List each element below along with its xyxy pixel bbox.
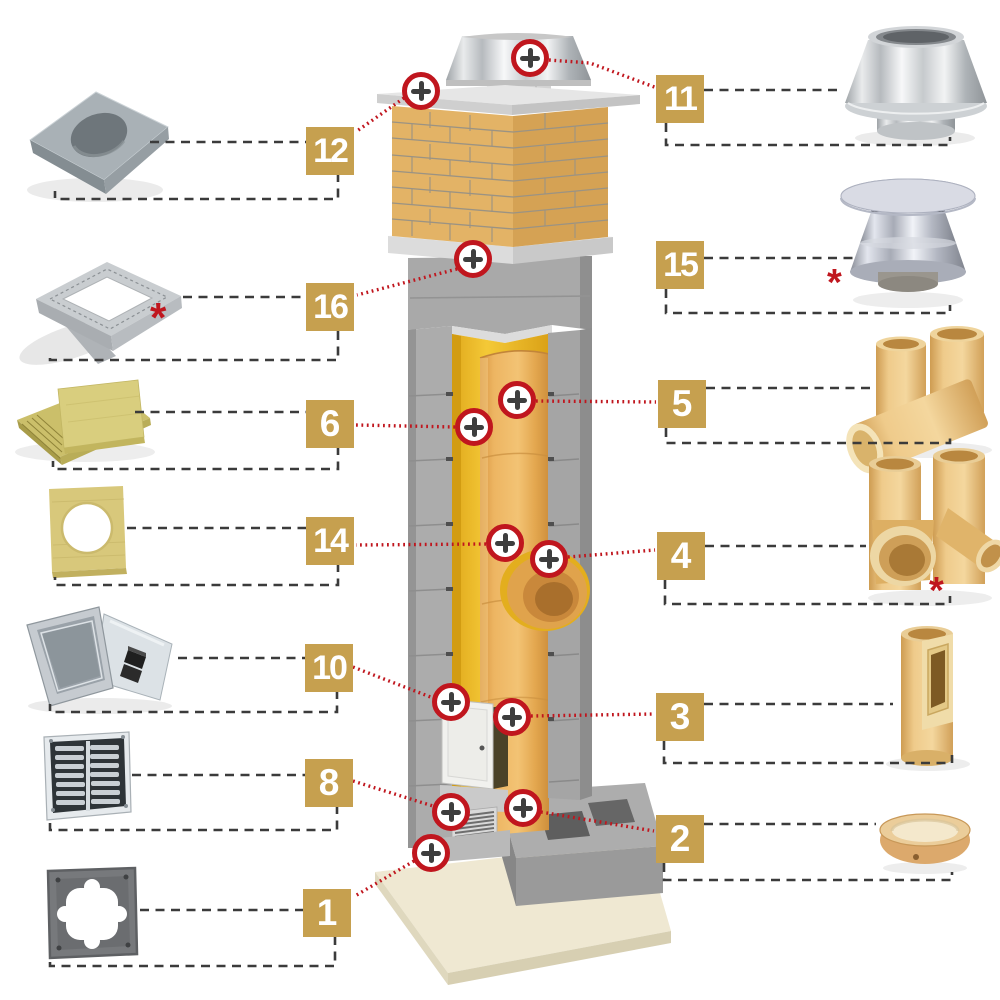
hotspot-marker-5[interactable] [498,381,536,419]
hotspot-marker-6[interactable] [455,408,493,446]
plus-icon [535,545,563,573]
brick-crown [392,106,608,247]
callout-badge-14[interactable]: 14 [306,517,354,565]
callout-badge-6[interactable]: 6 [306,400,354,448]
callout-badge-16[interactable]: 16 [306,283,354,331]
plus-icon [498,703,526,731]
asterisk-note-4: * [929,572,944,610]
product-cap-plate [27,92,169,202]
hotspot-marker-16[interactable] [454,240,492,278]
hotspot-marker-10[interactable] [432,683,470,721]
callout-badge-11[interactable]: 11 [656,75,704,123]
plus-icon [509,794,537,822]
hotspot-marker-11[interactable] [511,39,549,77]
hotspot-marker-3[interactable] [493,698,531,736]
plus-icon [460,413,488,441]
product-chimney-cowl [845,26,987,146]
product-condensate-bowl [880,814,970,874]
plus-icon [503,386,531,414]
plus-icon [516,44,544,72]
callout-badge-1[interactable]: 1 [303,889,351,937]
product-inspection-pipe [886,626,970,771]
product-chimney-block [48,868,137,958]
chimney-parts-diagram: 12 16 6 14 10 8 1 11 15 5 4 3 2 * * * [0,0,1000,1000]
product-insulation-sheets [15,380,155,465]
product-wool-plate [49,486,127,578]
plus-icon [417,839,445,867]
callout-badge-8[interactable]: 8 [305,759,353,807]
asterisk-note-16: * [150,297,166,339]
plus-icon [459,245,487,273]
diagram-illustration [0,0,1000,1000]
product-rain-cap [841,179,975,308]
callout-badge-5[interactable]: 5 [658,380,706,428]
product-inspection-door [27,607,172,714]
plus-icon [407,77,435,105]
hotspot-marker-12[interactable] [402,72,440,110]
plus-icon [491,529,519,557]
plus-icon [437,688,465,716]
callout-badge-3[interactable]: 3 [656,693,704,741]
plus-icon [437,798,465,826]
callout-badge-15[interactable]: 15 [656,241,704,289]
hotspot-marker-2[interactable] [504,789,542,827]
hotspot-marker-4[interactable] [530,540,568,578]
callout-badge-4[interactable]: 4 [657,532,705,580]
callout-badge-12[interactable]: 12 [306,127,354,175]
asterisk-note-15: * [827,264,842,302]
hotspot-marker-8[interactable] [432,793,470,831]
hotspot-marker-14[interactable] [486,524,524,562]
callout-badge-10[interactable]: 10 [305,644,353,692]
product-vent-grille [44,732,131,820]
callout-badge-2[interactable]: 2 [656,815,704,863]
hotspot-marker-1[interactable] [412,834,450,872]
